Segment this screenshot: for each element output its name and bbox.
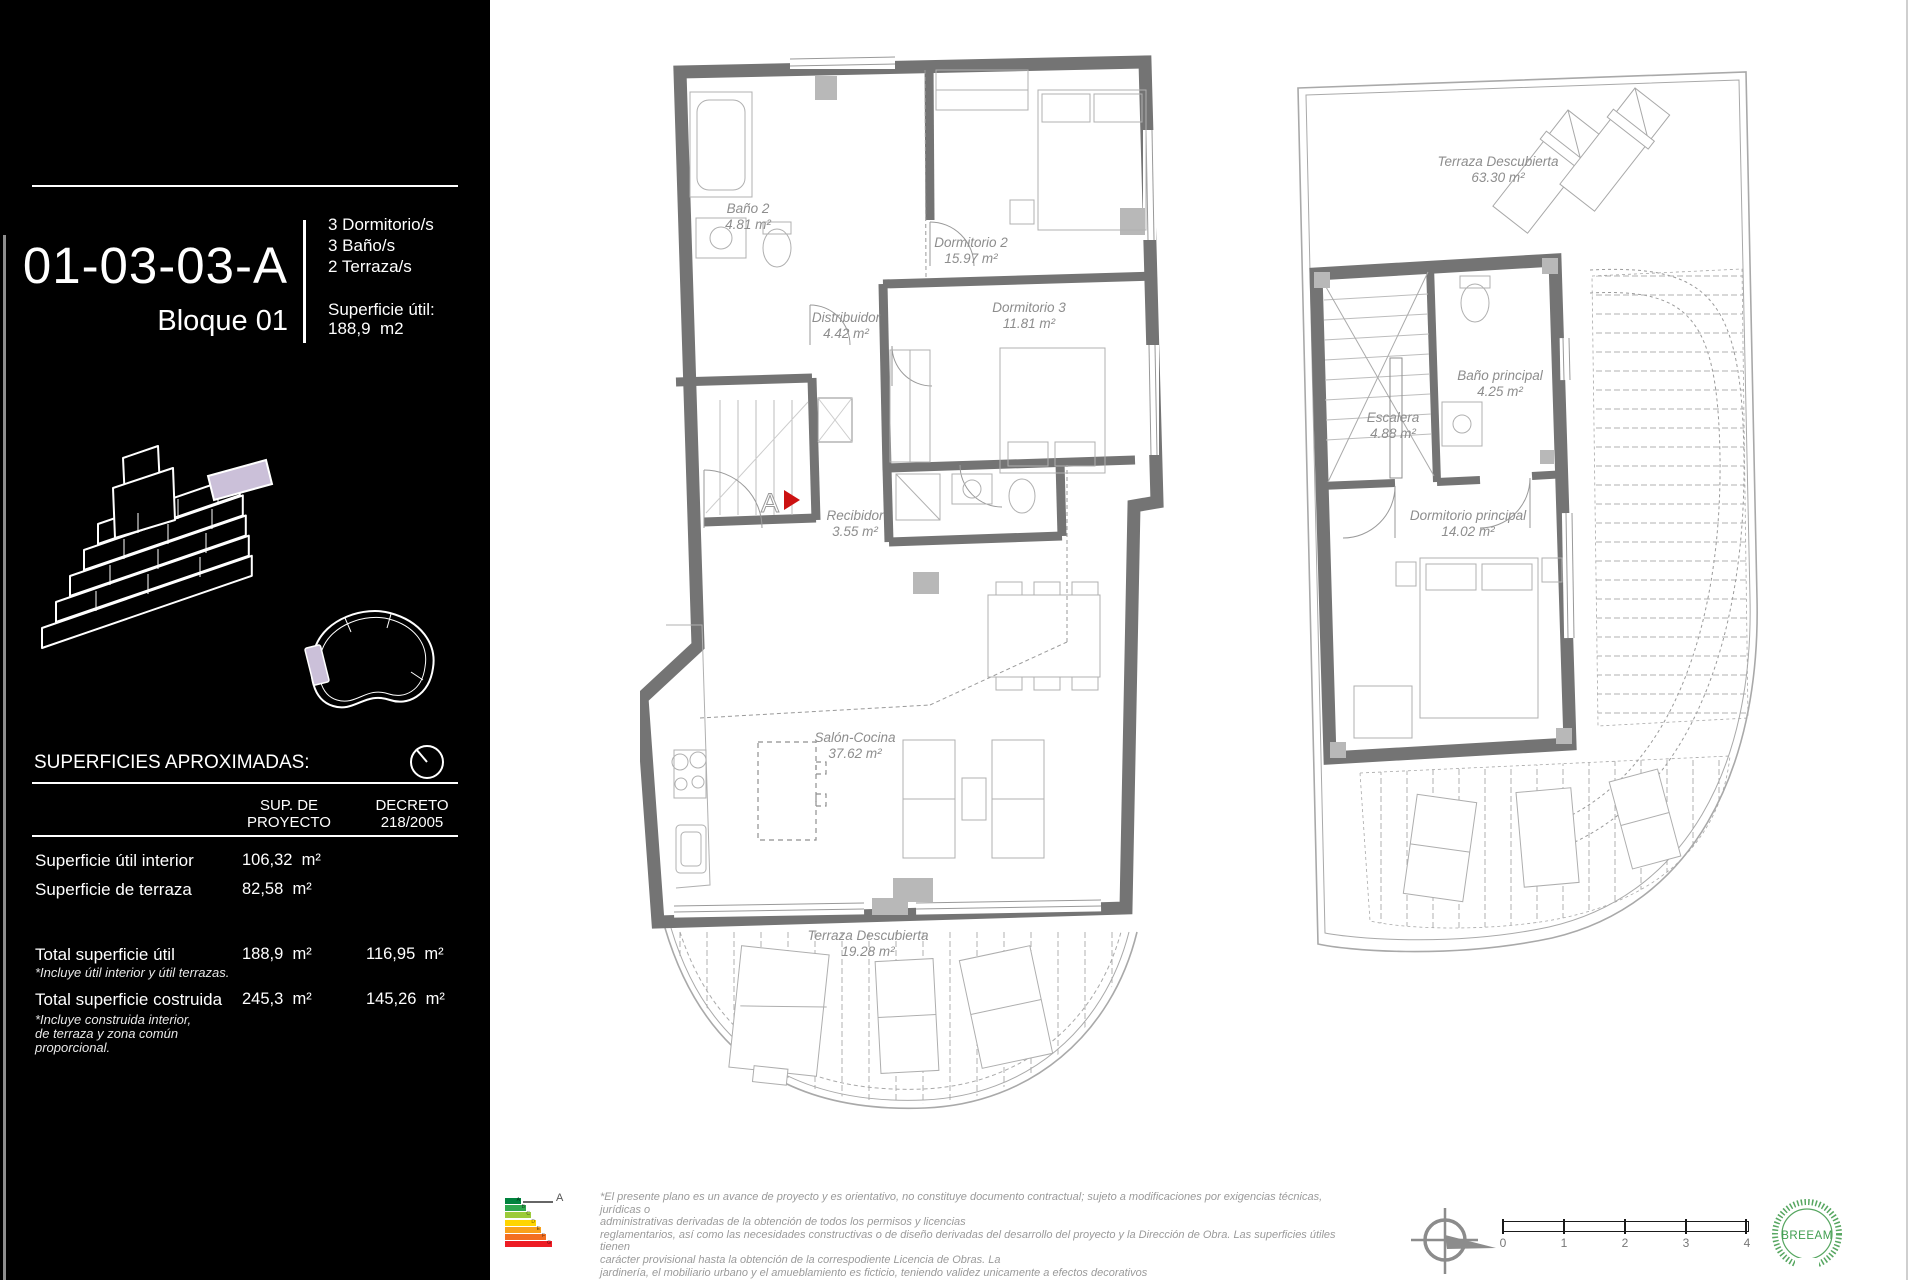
area-escalera: 4.88 m² <box>1370 426 1416 441</box>
energy-grade-e: E <box>537 1226 540 1232</box>
label-recibidor: Recibidor <box>826 508 884 523</box>
col-header-proyecto: SUP. DE PROYECTO <box>231 797 347 831</box>
table-rule-header <box>32 835 458 837</box>
superficies-title: SUPERFICIES APROXIMADAS: <box>34 752 310 774</box>
label-distribuidor: Distribuidor <box>812 310 881 325</box>
floor-plan-main-level: A Baño 2 4.81 m² Dormitorio 2 15.97 m² D… <box>640 50 1180 1110</box>
label-terraza-a: Terraza Descubierta <box>807 928 929 943</box>
area-salon: 37.62 m² <box>828 746 882 761</box>
scale-number-1: 1 <box>1561 1236 1568 1250</box>
note-total-costruida: *Incluye construida interior, de terraza… <box>35 1013 191 1055</box>
area-dormitorio2: 15.97 m² <box>944 251 998 266</box>
scale-bar: 0 1 2 3 4 <box>1502 1221 1749 1232</box>
energy-grade-g: G <box>547 1240 551 1246</box>
row-value-util-interior: 106,32 m² <box>242 851 321 870</box>
row-value-total-costruida-proyecto: 245,3 m² <box>242 990 312 1009</box>
disclaimer-line-4: carácter provisional hasta la obtención … <box>600 1254 1345 1267</box>
superficie-util: Superficie útil:188,9 m2 <box>328 300 435 338</box>
energy-grade-c: C <box>526 1211 530 1217</box>
row-label-total-util: Total superficie útil <box>35 945 175 965</box>
label-bano2: Baño 2 <box>727 201 770 216</box>
col-header-decreto: DECRETO 218/2005 <box>354 797 470 831</box>
area-dormitorio-principal: 14.02 m² <box>1441 524 1495 539</box>
energy-bar-f: F <box>505 1234 546 1240</box>
vertical-divider <box>303 220 306 343</box>
site-key-illustration <box>295 588 447 748</box>
breeam-text: BREEAM <box>1781 1230 1833 1242</box>
energy-grade-a: A <box>517 1197 520 1203</box>
table-rule-top <box>32 782 458 784</box>
area-terraza-a: 19.28 m² <box>841 944 895 959</box>
bathroom2-fixtures <box>690 92 791 267</box>
windows <box>674 56 1159 918</box>
floor-plan-upper-level: Terraza Descubierta 63.30 m² Escalera 4.… <box>1290 58 1850 998</box>
door-arcs <box>704 222 1002 528</box>
row-value-total-util-proyecto: 188,9 m² <box>242 945 312 964</box>
scale-number-4: 4 <box>1744 1236 1751 1250</box>
orientation-dial-icon <box>405 740 449 784</box>
north-compass-icon <box>1408 1206 1508 1278</box>
sidebar-top-rule <box>32 185 458 187</box>
feature-dormitorios: 3 Dormitorio/s <box>328 214 434 235</box>
building-axonometric-illustration <box>28 428 328 708</box>
row-value-total-util-decreto: 116,95 m² <box>366 945 444 964</box>
label-dormitorio-principal: Dormitorio principal <box>1410 508 1527 523</box>
row-value-terraza: 82,58 m² <box>242 880 312 899</box>
energy-bar-g: G <box>505 1241 552 1247</box>
bathroom3-fixtures <box>896 474 1035 520</box>
info-sidebar: 01-03-03-A Bloque 01 3 Dormitorio/s 3 Ba… <box>0 0 490 1280</box>
sidebar-edge-strip <box>3 235 6 1280</box>
scale-tick <box>1563 1219 1565 1234</box>
label-dormitorio2: Dormitorio 2 <box>934 235 1008 250</box>
superficie-util-value: 188,9 m2 <box>328 319 404 338</box>
label-terraza-b: Terraza Descubierta <box>1437 154 1559 169</box>
area-dormitorio3: 11.81 m² <box>1003 316 1056 331</box>
energy-bar-b: B <box>505 1205 526 1211</box>
energy-bar-c: C <box>505 1212 531 1218</box>
label-bano-principal: Baño principal <box>1457 368 1544 383</box>
feature-terrazas: 2 Terraza/s <box>328 256 434 277</box>
row-label-total-costruida: Total superficie costruida <box>35 990 222 1010</box>
scale-tick <box>1624 1219 1626 1234</box>
scale-number-2: 2 <box>1622 1236 1629 1250</box>
energy-rating-label: A B C D E F G <box>505 1198 552 1248</box>
scale-tick <box>1745 1219 1747 1234</box>
louvre-band-right <box>1592 269 1748 726</box>
dormitorio2-furniture <box>936 70 1146 230</box>
energy-grade-f: F <box>542 1233 545 1239</box>
plan-sheet: 01-03-03-A Bloque 01 3 Dormitorio/s 3 Ba… <box>0 0 1920 1280</box>
room-labels: Baño 2 4.81 m² Dormitorio 2 15.97 m² Dor… <box>725 201 1066 959</box>
outer-walls <box>642 62 1157 922</box>
note-total-util: *Incluye útil interior y útil terrazas. <box>35 966 229 980</box>
label-salon: Salón-Cocina <box>814 730 896 745</box>
dormitorio3-furniture <box>890 348 1105 473</box>
scale-tick <box>1502 1219 1504 1234</box>
site-key-highlighted-unit <box>305 645 330 686</box>
energy-grade-d: D <box>531 1219 535 1225</box>
unit-features: 3 Dormitorio/s 3 Baño/s 2 Terraza/s <box>328 214 434 277</box>
disclaimer-line-3: reglamentarios, así como las necesidades… <box>600 1229 1345 1254</box>
row-label-util-interior: Superficie útil interior <box>35 851 194 871</box>
interior-walls <box>676 62 1157 542</box>
living-dining-furniture <box>903 582 1100 858</box>
gray-accents <box>815 76 1145 915</box>
area-terraza-b: 63.30 m² <box>1471 170 1525 185</box>
unit-code: 01-03-03-A <box>0 236 288 295</box>
entrance-marker: A <box>761 488 800 518</box>
energy-bar-e: E <box>505 1227 541 1233</box>
block-label: Bloque 01 <box>0 305 288 338</box>
row-value-total-costruida-decreto: 145,26 m² <box>366 990 445 1009</box>
energy-grade-b: B <box>522 1204 525 1210</box>
area-bano-principal: 4.25 m² <box>1477 384 1523 399</box>
disclaimer-text: *El presente plano es un avance de proye… <box>600 1191 1345 1279</box>
scale-number-0: 0 <box>1500 1236 1507 1250</box>
sheet-right-edge <box>1906 0 1908 1280</box>
disclaimer-line-2: administrativas derivadas de la obtenció… <box>600 1216 1345 1229</box>
disclaimer-line-1: *El presente plano es un avance de proye… <box>600 1191 1345 1216</box>
label-dormitorio3: Dormitorio 3 <box>992 300 1066 315</box>
entrance-letter: A <box>761 488 779 518</box>
energy-bar-d: D <box>505 1220 536 1226</box>
label-escalera: Escalera <box>1367 410 1420 425</box>
superficie-util-label: Superficie útil: <box>328 300 435 319</box>
scale-number-3: 3 <box>1683 1236 1690 1250</box>
area-recibidor: 3.55 m² <box>832 524 878 539</box>
energy-current-grade: A <box>556 1192 563 1204</box>
row-label-terraza: Superficie de terraza <box>35 880 192 900</box>
disclaimer-line-5: jardinería, el mobiliario urbano y el am… <box>600 1267 1345 1280</box>
energy-bar-a: A <box>505 1198 521 1204</box>
kitchen-island <box>758 742 826 840</box>
area-distribuidor: 4.42 m² <box>823 326 869 341</box>
area-bano2: 4.81 m² <box>725 217 771 232</box>
feature-banos: 3 Baño/s <box>328 235 434 256</box>
energy-marker-line <box>523 1201 553 1203</box>
breeam-logo: BREEAM <box>1767 1196 1847 1276</box>
scale-tick <box>1685 1219 1687 1234</box>
